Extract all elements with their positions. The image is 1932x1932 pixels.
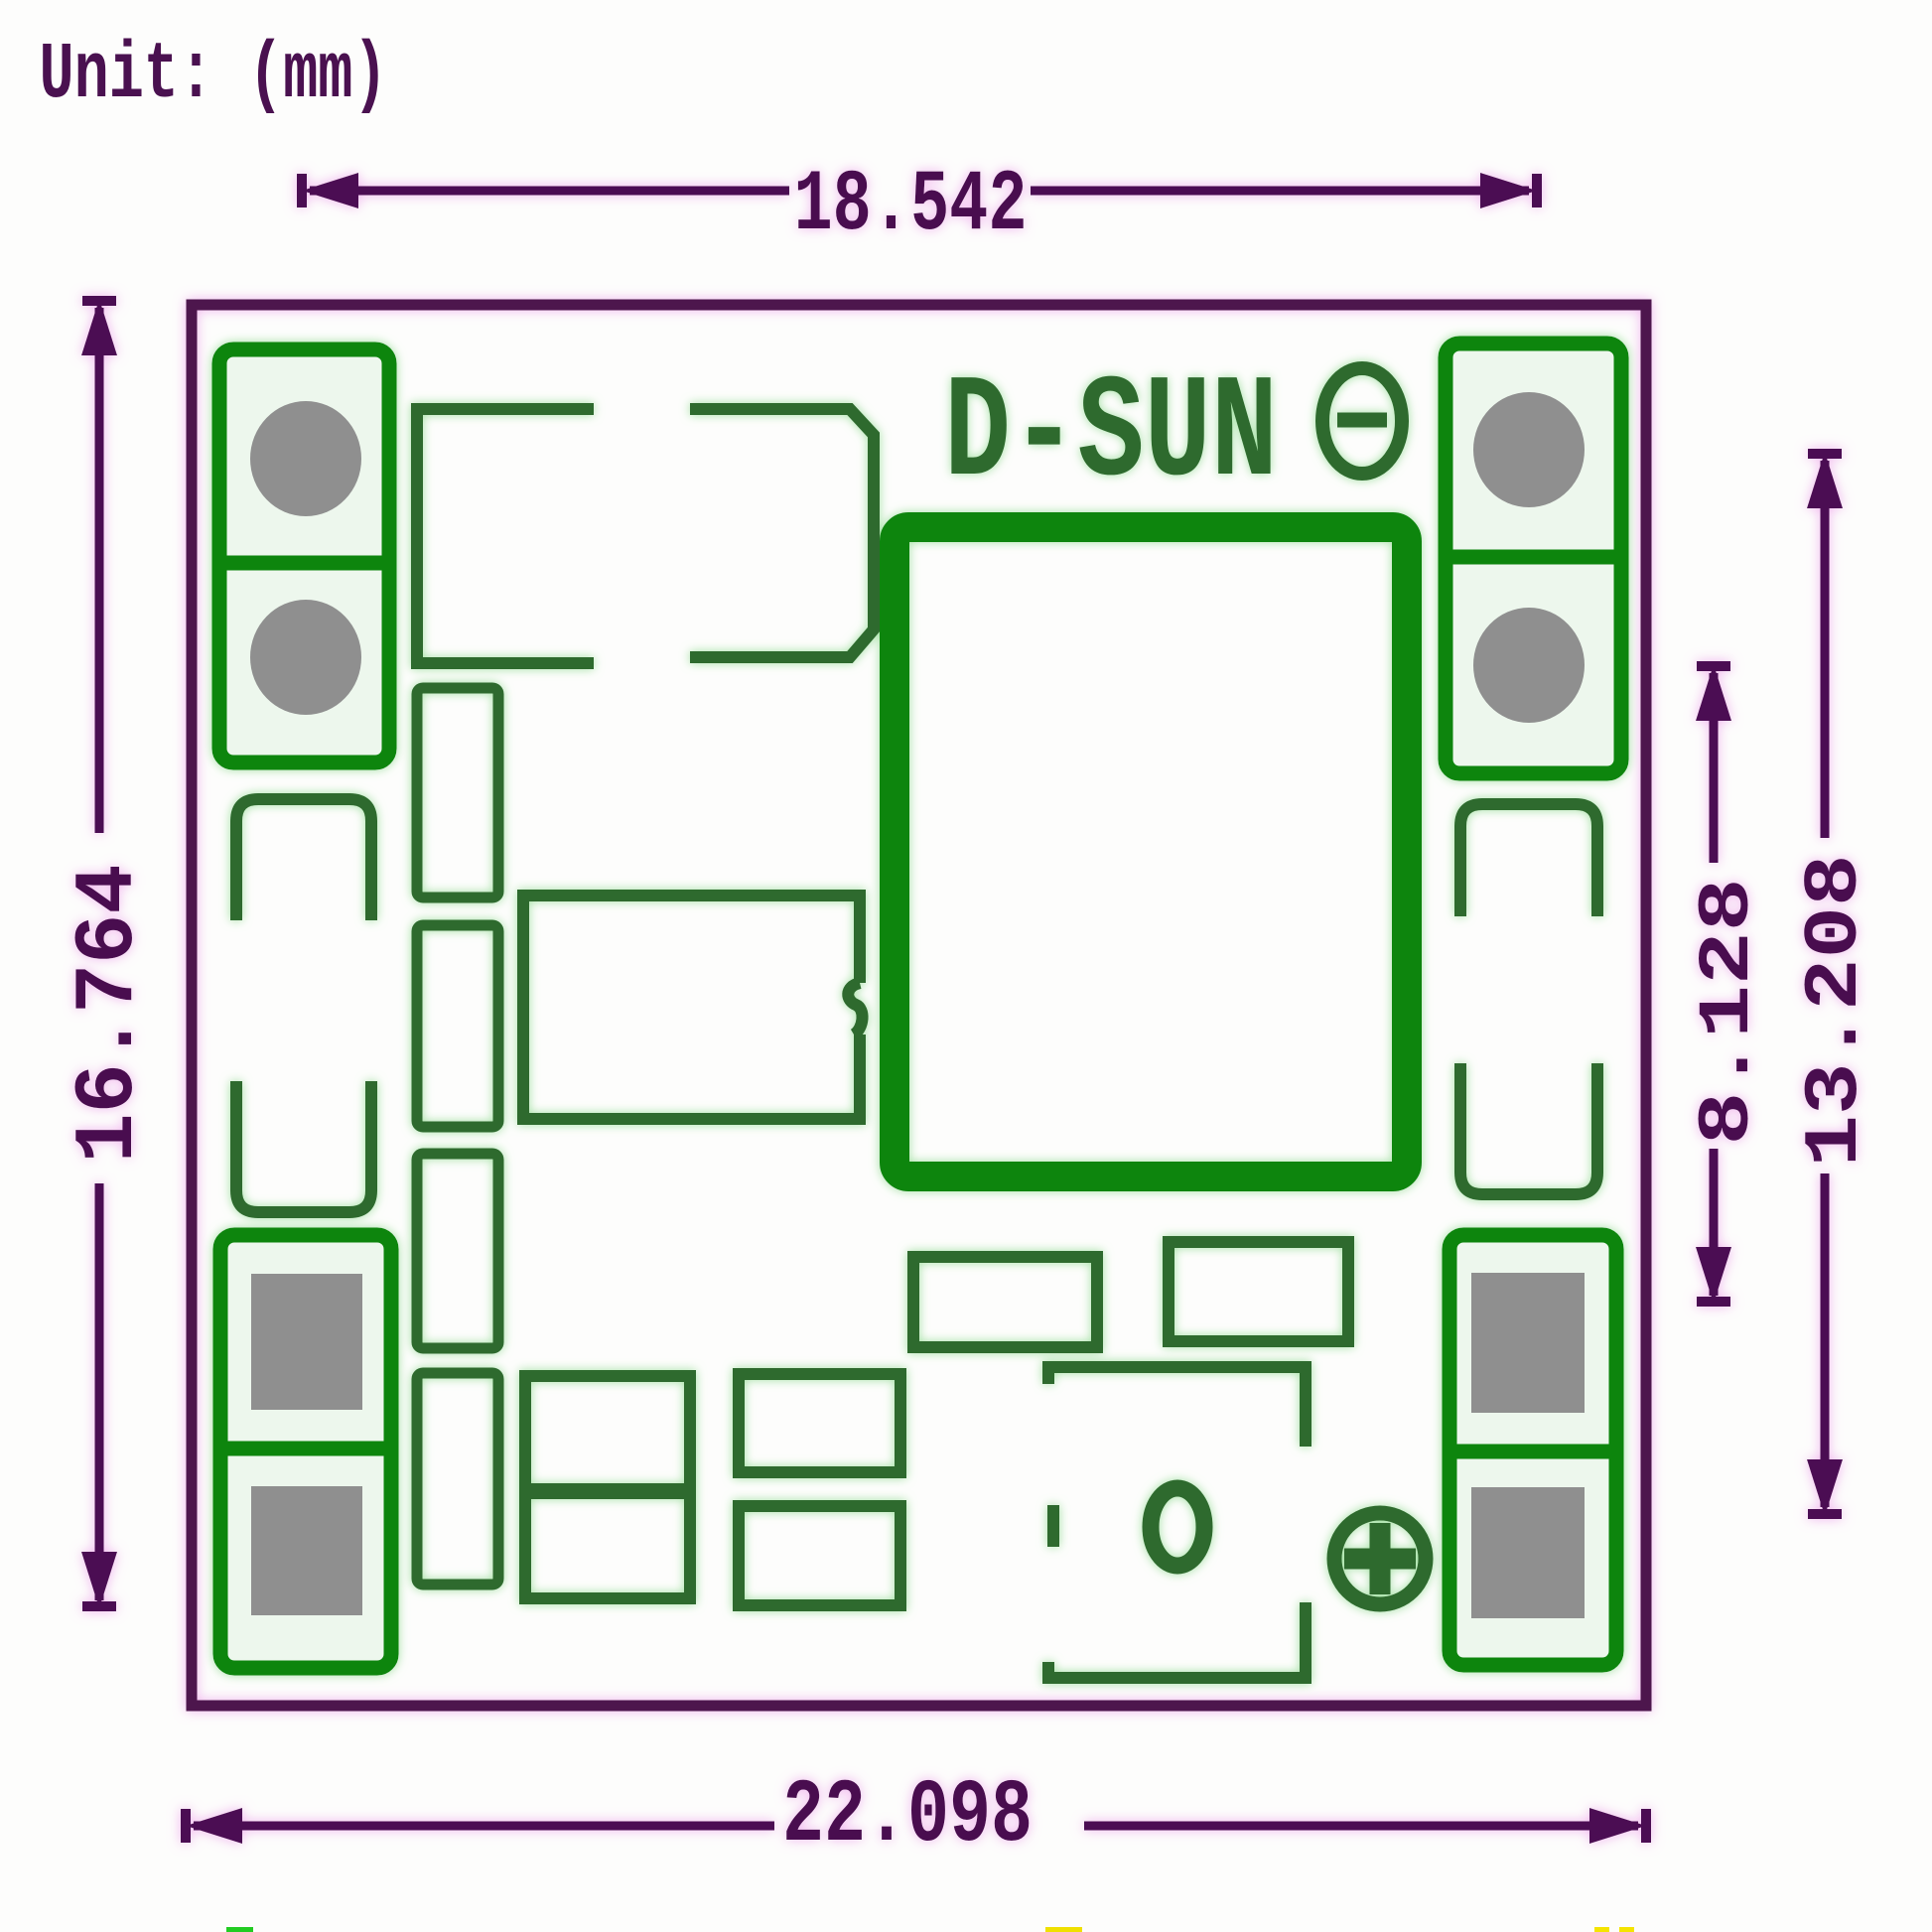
svg-text:16.764: 16.764 bbox=[63, 865, 157, 1164]
svg-text:D-SUN: D-SUN bbox=[944, 353, 1278, 518]
svg-text:18.542: 18.542 bbox=[794, 158, 1028, 255]
svg-text:13.208: 13.208 bbox=[1793, 855, 1879, 1168]
svg-text:Unit: (mm): Unit: (mm) bbox=[40, 31, 388, 121]
svg-text:22.098: 22.098 bbox=[782, 1766, 1033, 1867]
svg-text:8.128: 8.128 bbox=[1687, 879, 1769, 1146]
